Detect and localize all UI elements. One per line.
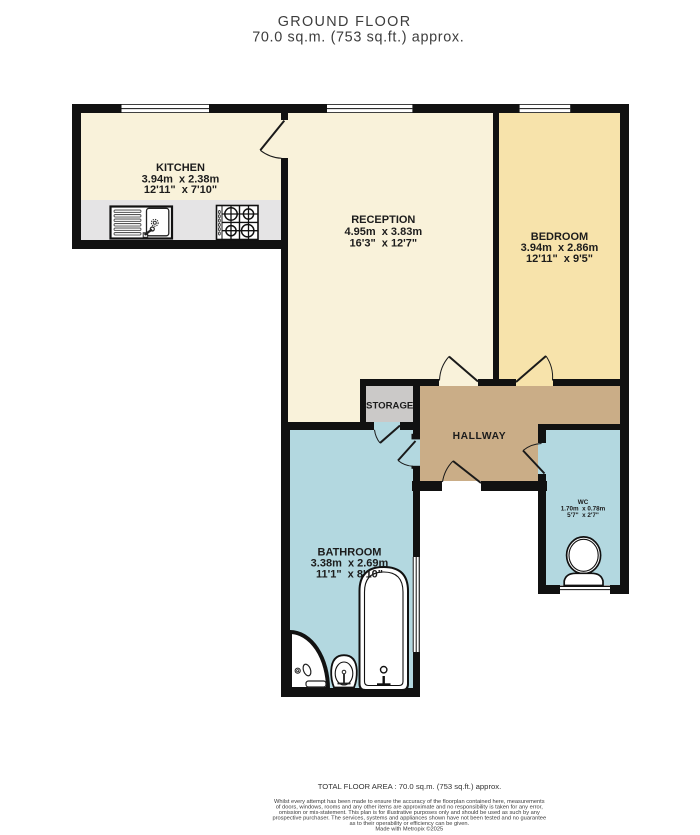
- svg-text:12'11" x 7'10": 12'11" x 7'10": [144, 184, 217, 196]
- svg-text:TOTAL FLOOR AREA : 70.0 sq.m.: TOTAL FLOOR AREA : 70.0 sq.m. (753 sq.ft…: [318, 782, 502, 791]
- svg-text:16'3" x 12'7": 16'3" x 12'7": [349, 238, 417, 250]
- svg-text:KITCHEN: KITCHEN: [156, 162, 205, 174]
- svg-text:Made with Metropix ©2025: Made with Metropix ©2025: [375, 825, 443, 832]
- svg-text:HALLWAY: HALLWAY: [453, 431, 507, 442]
- svg-text:RECEPTION: RECEPTION: [351, 214, 415, 226]
- svg-text:11'1" x 8'10": 11'1" x 8'10": [316, 568, 383, 580]
- svg-text:4.95m x 3.83m: 4.95m x 3.83m: [344, 226, 422, 238]
- svg-text:70.0 sq.m. (753 sq.ft.) approx: 70.0 sq.m. (753 sq.ft.) approx.: [252, 29, 464, 45]
- svg-text:5'7" x 2'7": 5'7" x 2'7": [567, 512, 599, 519]
- svg-text:12'11" x 9'5": 12'11" x 9'5": [526, 253, 593, 265]
- svg-text:STORAGE: STORAGE: [366, 400, 414, 411]
- svg-text:GROUND FLOOR: GROUND FLOOR: [278, 14, 412, 30]
